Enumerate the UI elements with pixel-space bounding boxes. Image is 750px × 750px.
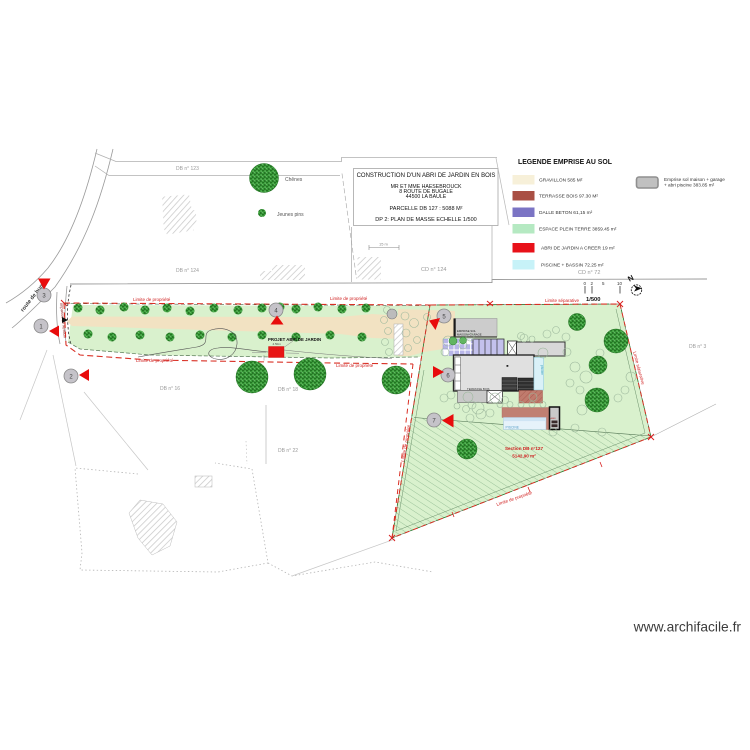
svg-text:www.archifacile.fr: www.archifacile.fr	[633, 620, 742, 635]
svg-text:ESPACE PLEIN TERRE 3859.45 m²: ESPACE PLEIN TERRE 3859.45 m²	[539, 227, 617, 233]
svg-text:+ abri piscine 383.85 m²: + abri piscine 383.85 m²	[664, 183, 715, 188]
svg-text:Limite de propriété: Limite de propriété	[336, 363, 374, 368]
svg-text:DB n° 18: DB n° 18	[278, 387, 298, 393]
svg-text:piscine: piscine	[540, 365, 544, 375]
svg-text:PISCINE: PISCINE	[506, 426, 520, 430]
svg-text:TERRASSE BOIS 97.30 M²: TERRASSE BOIS 97.30 M²	[539, 194, 598, 200]
svg-text:PARCELLE DB 127 : 5088 M²: PARCELLE DB 127 : 5088 M²	[390, 206, 463, 212]
svg-text:Chênes: Chênes	[285, 177, 303, 183]
svg-text:DB n° 124: DB n° 124	[176, 268, 199, 274]
svg-text:10: 10	[617, 281, 623, 286]
svg-text:Emprise sol maison + garage: Emprise sol maison + garage	[664, 177, 725, 182]
svg-text:LEGENDE EMPRISE AU SOL: LEGENDE EMPRISE AU SOL	[518, 159, 612, 166]
svg-text:Limite séparative: Limite séparative	[545, 298, 580, 303]
svg-text:15 m: 15 m	[379, 242, 389, 247]
svg-text:DB n° 123: DB n° 123	[176, 166, 199, 172]
svg-text:DB n° 16: DB n° 16	[160, 386, 180, 392]
svg-text:DP 2: PLAN DE MASSE ECHELLE 1: DP 2: PLAN DE MASSE ECHELLE 1/500	[375, 217, 476, 223]
svg-text:CD n° 72: CD n° 72	[578, 270, 600, 276]
svg-text:1/500: 1/500	[586, 297, 601, 303]
svg-text:44500 LA BAULE: 44500 LA BAULE	[406, 194, 447, 200]
svg-text:DALLE BETON 61,15 m²: DALLE BETON 61,15 m²	[539, 210, 593, 216]
svg-text:DB n° 22: DB n° 22	[278, 448, 298, 454]
svg-text:GRAVILLON 585 M²: GRAVILLON 585 M²	[539, 178, 583, 184]
svg-text:5142,90 m²: 5142,90 m²	[512, 454, 536, 459]
svg-text:Section DB n°127: Section DB n°127	[505, 446, 544, 451]
svg-text:ABRI: ABRI	[551, 417, 556, 420]
svg-text:Limite de propriété: Limite de propriété	[330, 296, 368, 301]
svg-text:CONSTRUCTION D'UN ABRI DE JARD: CONSTRUCTION D'UN ABRI DE JARDIN EN BOIS	[357, 173, 496, 179]
svg-text:CD n° 124: CD n° 124	[421, 267, 446, 273]
svg-text:Limite de propriété: Limite de propriété	[133, 297, 171, 302]
svg-text:Jeunes pins: Jeunes pins	[277, 212, 304, 218]
svg-text:4.50m: 4.50m	[273, 342, 282, 346]
svg-text:ABRI DE JARDIN A CREER 19 m²: ABRI DE JARDIN A CREER 19 m²	[541, 246, 615, 252]
svg-text:Limite de propriété: Limite de propriété	[136, 358, 174, 363]
svg-text:PISCINE + BASSIN 72.25 m²: PISCINE + BASSIN 72.25 m²	[541, 263, 604, 269]
svg-text:DB n° 3: DB n° 3	[689, 344, 707, 350]
